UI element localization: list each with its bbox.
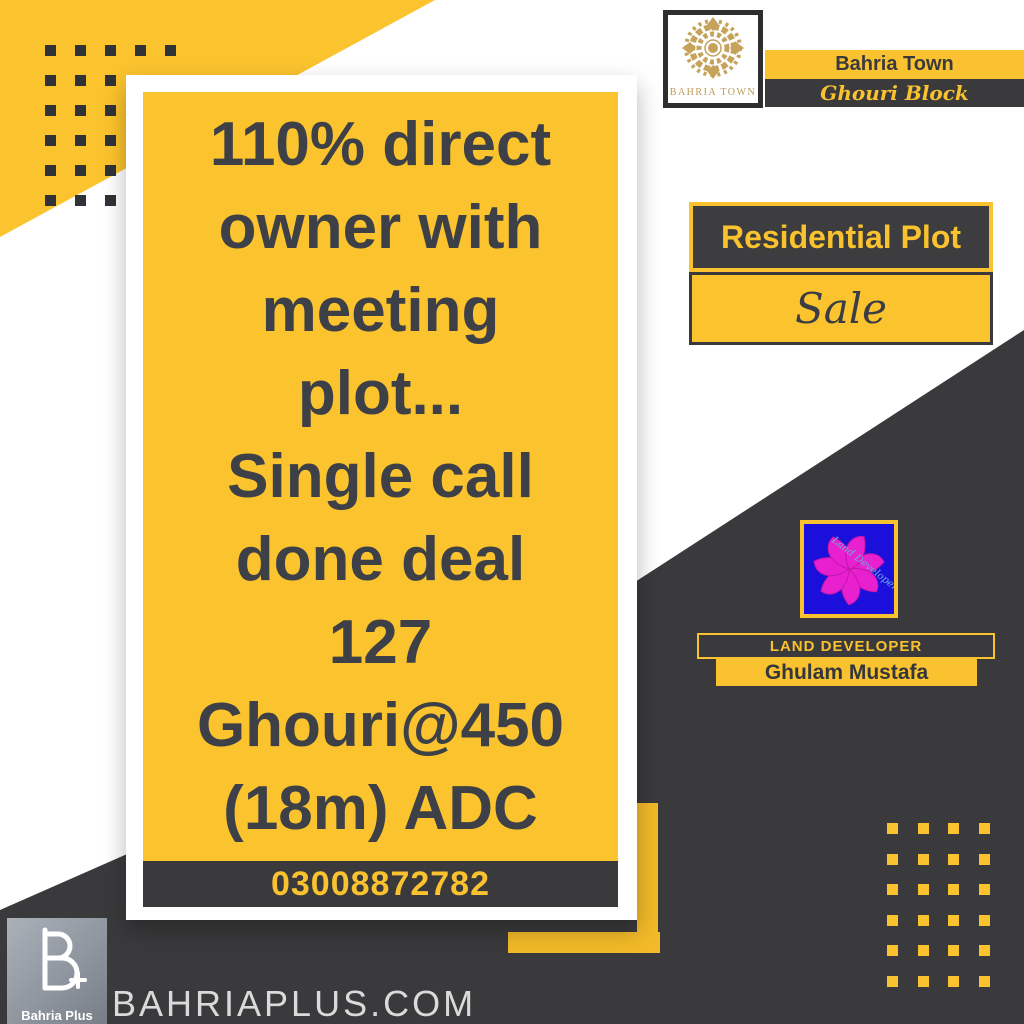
yellow-bracket-horizontal [508,932,660,953]
website-url: BAHRIAPLUS.COM [112,983,476,1024]
listing-text-line: meeting [262,269,500,352]
dot [75,165,86,176]
yellow-bracket-vertical [637,803,658,953]
dot [105,165,116,176]
block-name-label: Ghouri Block [820,81,968,105]
dot [105,135,116,146]
dot [75,75,86,86]
dot [979,976,990,987]
dot [918,945,929,956]
dot [979,884,990,895]
listing-text-line: done deal [236,518,525,601]
developer-name-label: Ghulam Mustafa [765,661,928,685]
dot [948,854,959,865]
dot [887,976,898,987]
listing-card: 110% direct owner with meeting plot... S… [126,75,637,920]
dot [105,45,116,56]
dot [948,976,959,987]
dot [918,823,929,834]
dot [75,135,86,146]
dot [918,976,929,987]
developer-name-bar: Ghulam Mustafa [716,659,977,686]
dot [45,135,56,146]
dot [105,195,116,206]
dot [887,823,898,834]
dot [75,195,86,206]
pinwheel-flower-icon: Land Developer [804,601,894,618]
bahria-plus-logo-box: Bahria Plus [7,918,107,1024]
bahria-town-logo-box: BAHRIA TOWN [663,10,763,108]
listing-text-line: Ghouri@450 [197,684,564,767]
developer-role-label: LAND DEVELOPER [770,638,922,655]
dot [105,75,116,86]
dot [887,854,898,865]
dot [948,823,959,834]
dot [918,915,929,926]
dot [75,105,86,116]
phone-bar: 03008872782 [143,861,618,907]
developer-logo-box: Land Developer [800,520,898,618]
dot [45,45,56,56]
dot [887,945,898,956]
dot [45,75,56,86]
dot [45,165,56,176]
dot [948,945,959,956]
dot [887,915,898,926]
listing-text-line: owner with [219,186,543,269]
listing-type-box: Residential Plot [689,202,993,272]
block-name-bar: Ghouri Block [765,79,1024,107]
dot [105,105,116,116]
listing-text-line: 110% direct [210,103,551,186]
dot [45,195,56,206]
dot [135,45,146,56]
town-name-bar: Bahria Town [765,50,1024,79]
dot [75,45,86,56]
dot [979,945,990,956]
listing-status-box: Sale [689,272,993,345]
dot [887,884,898,895]
bahria-plus-monogram-icon [15,918,99,1007]
listing-text-line: plot... [298,352,463,435]
listing-text-line: (18m) ADC [223,767,538,850]
dot [948,884,959,895]
phone-number: 03008872782 [271,865,490,904]
dot [918,854,929,865]
listing-status-label: Sale [795,284,887,333]
bahria-town-emblem-icon [680,15,746,86]
bahria-town-logo-caption: BAHRIA TOWN [670,87,756,98]
listing-text-line: 127 [329,601,432,684]
dot [918,884,929,895]
listing-type-label: Residential Plot [721,219,961,256]
listing-description: 110% direct owner with meeting plot... S… [143,92,618,861]
bahria-plus-label: Bahria Plus [21,1008,93,1023]
dot [979,915,990,926]
dot [979,823,990,834]
flyer-canvas: 110% direct owner with meeting plot... S… [0,0,1024,1024]
dot [45,105,56,116]
developer-role-bar: LAND DEVELOPER [697,633,995,659]
dot [979,854,990,865]
town-name-label: Bahria Town [835,53,954,76]
dot [165,45,176,56]
dot [948,915,959,926]
listing-text-line: Single call [227,435,534,518]
